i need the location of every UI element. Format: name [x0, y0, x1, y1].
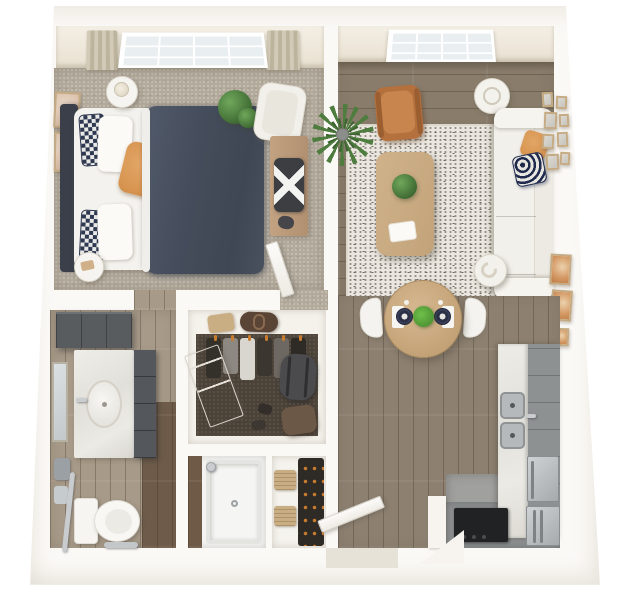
- bedroom-window-panes: [121, 35, 264, 65]
- table-lamp: [114, 82, 129, 97]
- duffel-gray-strap-1: [286, 356, 292, 396]
- closet-shelf-bag-tan: [207, 312, 235, 333]
- closet-shelf-duffel-brown: [240, 311, 279, 332]
- gallery-frame-6: [557, 132, 569, 147]
- toilet-seat: [105, 509, 132, 534]
- shower-wood-wall: [188, 456, 202, 548]
- living-wall-shadow: [338, 62, 554, 71]
- gallery-frame-7: [546, 154, 560, 170]
- leather-armchair: [374, 84, 425, 142]
- sink-drain-2: [510, 433, 515, 438]
- dining-cup-2: [438, 300, 443, 305]
- leather-armchair-seat: [380, 90, 416, 135]
- coat-closet-rack: [298, 458, 324, 546]
- bedroom-armchair-seat: [261, 89, 299, 137]
- bathroom-door-threshold: [134, 290, 176, 310]
- cooktop-knob-3: [482, 535, 486, 539]
- bed-pillow-white-2: [97, 203, 133, 260]
- bed-duvet: [146, 106, 264, 274]
- kitchen-refrigerator: [526, 506, 560, 546]
- refrigerator-handle-2: [540, 510, 543, 543]
- gallery-frame-2: [556, 96, 567, 109]
- palm-pot: [336, 128, 349, 141]
- sofa-cushion-seam-1: [496, 216, 536, 217]
- gallery-frame-1: [542, 92, 554, 108]
- bathroom-mirror: [52, 362, 68, 442]
- coat-closet-basket-1: [274, 470, 296, 490]
- toilet-bowl: [94, 500, 140, 542]
- closet-bag-brown: [280, 404, 318, 436]
- bathroom-towel-2: [54, 486, 68, 504]
- gallery-frame-8: [560, 152, 571, 166]
- apartment-plan: [30, 6, 600, 585]
- bed-duvet-fold: [142, 108, 150, 272]
- dining-cup-1: [404, 300, 409, 305]
- bedroom-window: [118, 32, 268, 68]
- kitchen-sink-bowl-1: [500, 392, 525, 419]
- bathroom-floor-fixture: [104, 542, 138, 548]
- living-window-panes: [389, 32, 493, 59]
- coffee-table-tray: [388, 220, 417, 243]
- kitchen-dishwasher: [527, 456, 559, 502]
- dishwasher-handle: [531, 461, 534, 499]
- entry-threshold: [326, 548, 398, 568]
- sculpture-floor-lamp-swirl: [478, 259, 500, 281]
- bathroom-towel-1: [54, 458, 70, 480]
- kitchen-faucet: [526, 414, 536, 418]
- garment-4: [257, 338, 272, 376]
- kitchen-half-wall: [428, 496, 446, 548]
- bedroom-curtain-left: [86, 30, 118, 70]
- gallery-frame-5: [542, 134, 555, 150]
- closet-duffel-gray: [278, 353, 317, 401]
- gallery-frame-4: [559, 114, 569, 127]
- bathroom-drawer-stack: [134, 350, 156, 458]
- dining-centerpiece-plant: [413, 306, 434, 327]
- sink-drain-1: [510, 403, 515, 408]
- living-window: [386, 30, 496, 62]
- dining-plate-right: [434, 308, 451, 325]
- bathroom-faucet: [76, 398, 87, 402]
- shower-head: [206, 462, 216, 472]
- bathroom-sink: [86, 380, 122, 428]
- cooktop-knob-2: [472, 535, 476, 539]
- bathroom-sink-drain: [102, 402, 107, 407]
- kitchen-sink-bowl-2: [500, 422, 525, 449]
- bathroom-upper-cabinets: [56, 312, 132, 348]
- coat-closet-basket-2: [274, 506, 296, 526]
- duffel-strap: [253, 314, 266, 330]
- shower-drain: [231, 500, 238, 507]
- warm-art-1: [549, 253, 572, 285]
- bedroom-desk-chair: [274, 158, 304, 212]
- garment-3: [240, 338, 255, 380]
- shower-tray: [206, 460, 262, 544]
- duffel-gray-strap-2: [304, 358, 310, 398]
- bedroom-curtain-right: [266, 30, 300, 70]
- floor-plan-stage: [0, 0, 620, 600]
- refrigerator-handle-1: [533, 510, 536, 543]
- gallery-frame-3: [544, 112, 558, 129]
- sculpture-floor-lamp: [474, 254, 507, 287]
- dining-plate-left: [396, 308, 413, 325]
- coffee-table-plant: [392, 174, 417, 199]
- drum-floor-lamp-ring: [483, 87, 501, 105]
